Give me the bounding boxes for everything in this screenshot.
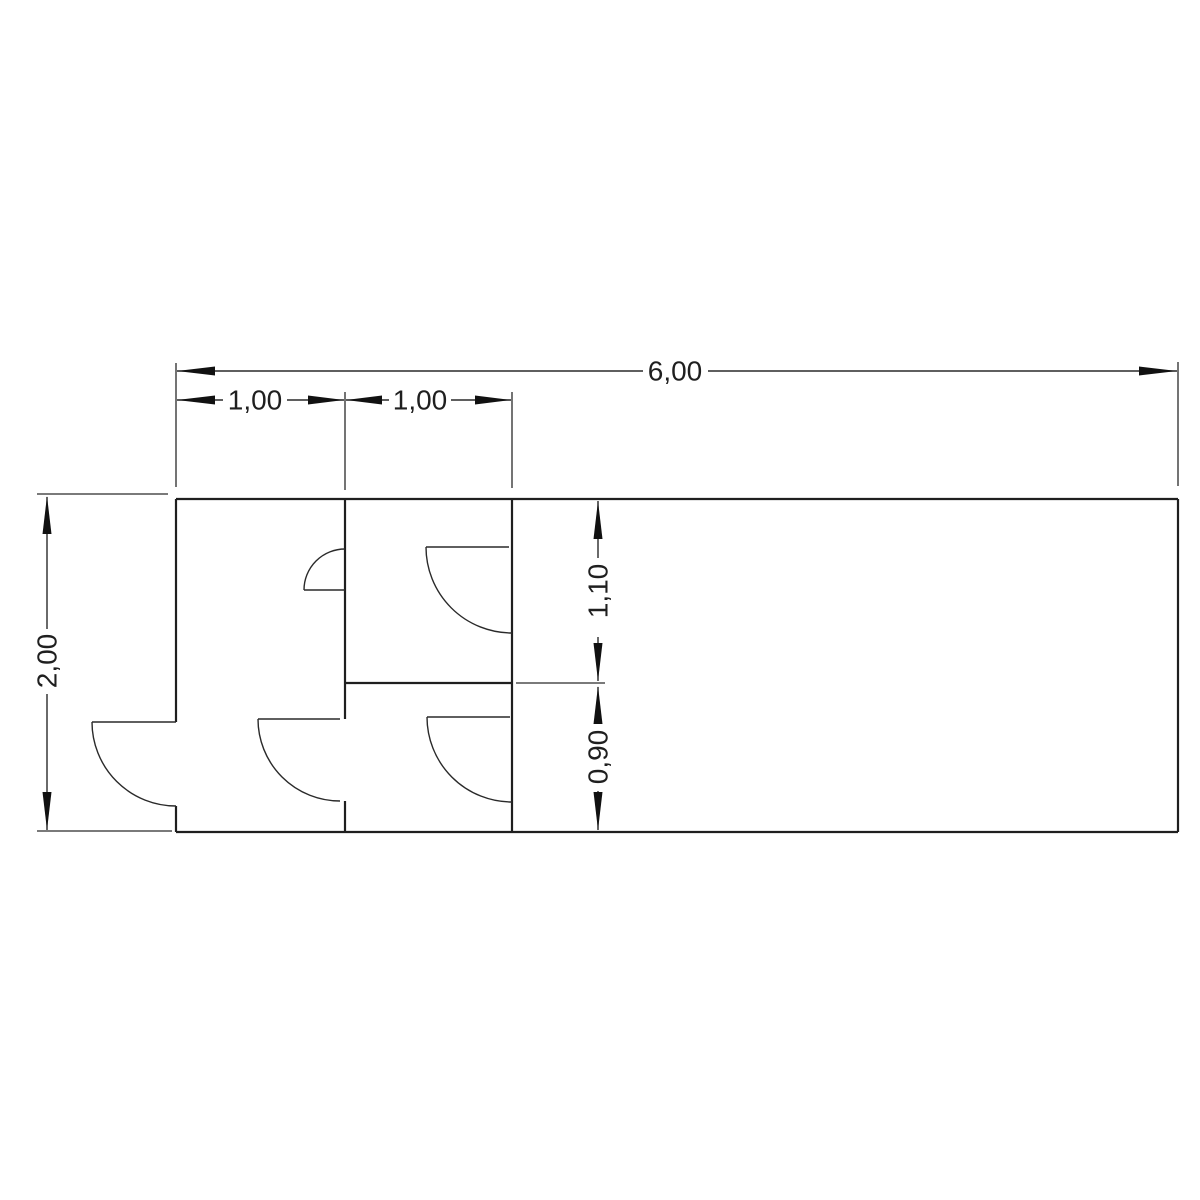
floor-plan-drawing: 6,00 1,00 1,00 2,00	[0, 0, 1200, 1200]
arrow-right-icon	[475, 396, 511, 405]
arrow-up-icon	[594, 686, 603, 724]
door-e	[427, 717, 512, 802]
arrow-down-icon	[43, 792, 52, 830]
dimension-room1-width: 1,00	[177, 385, 344, 416]
arrow-right-icon	[308, 396, 344, 405]
dimension-room2-width: 1,00	[346, 385, 511, 416]
walls	[176, 499, 1178, 832]
arrow-left-icon	[177, 367, 215, 376]
dimension-label-total-width: 6,00	[648, 356, 703, 387]
door-a	[304, 549, 345, 590]
floor-plan-page: 6,00 1,00 1,00 2,00	[0, 0, 1200, 1200]
dimension-upper-room-height: 1,10	[583, 501, 614, 681]
arrow-left-icon	[177, 396, 215, 405]
door-e-swing-arc	[427, 717, 512, 802]
dimension-total-height: 2,00	[32, 496, 63, 830]
door-c	[258, 719, 340, 801]
door-c-swing-arc	[258, 719, 340, 801]
dimension-lower-room-height: 0,90	[583, 686, 614, 830]
doors	[92, 547, 512, 806]
arrow-up-icon	[594, 501, 603, 539]
door-a-swing-arc	[304, 549, 345, 590]
dimension-label-total-height: 2,00	[32, 634, 63, 689]
door-d-swing-arc	[426, 547, 512, 633]
arrow-right-icon	[1139, 367, 1177, 376]
dimension-total-width: 6,00	[177, 356, 1177, 387]
door-b	[92, 722, 176, 806]
arrow-left-icon	[346, 396, 382, 405]
dimension-label-lower-room-height: 0,90	[583, 730, 614, 785]
door-d	[426, 547, 512, 633]
arrow-down-icon	[594, 792, 603, 830]
dimension-label-room2-width: 1,00	[393, 385, 448, 416]
dimension-label-room1-width: 1,00	[228, 385, 283, 416]
dimension-label-upper-room-height: 1,10	[583, 564, 614, 619]
arrow-down-icon	[594, 643, 603, 681]
door-b-swing-arc	[92, 722, 176, 806]
arrow-up-icon	[43, 496, 52, 534]
